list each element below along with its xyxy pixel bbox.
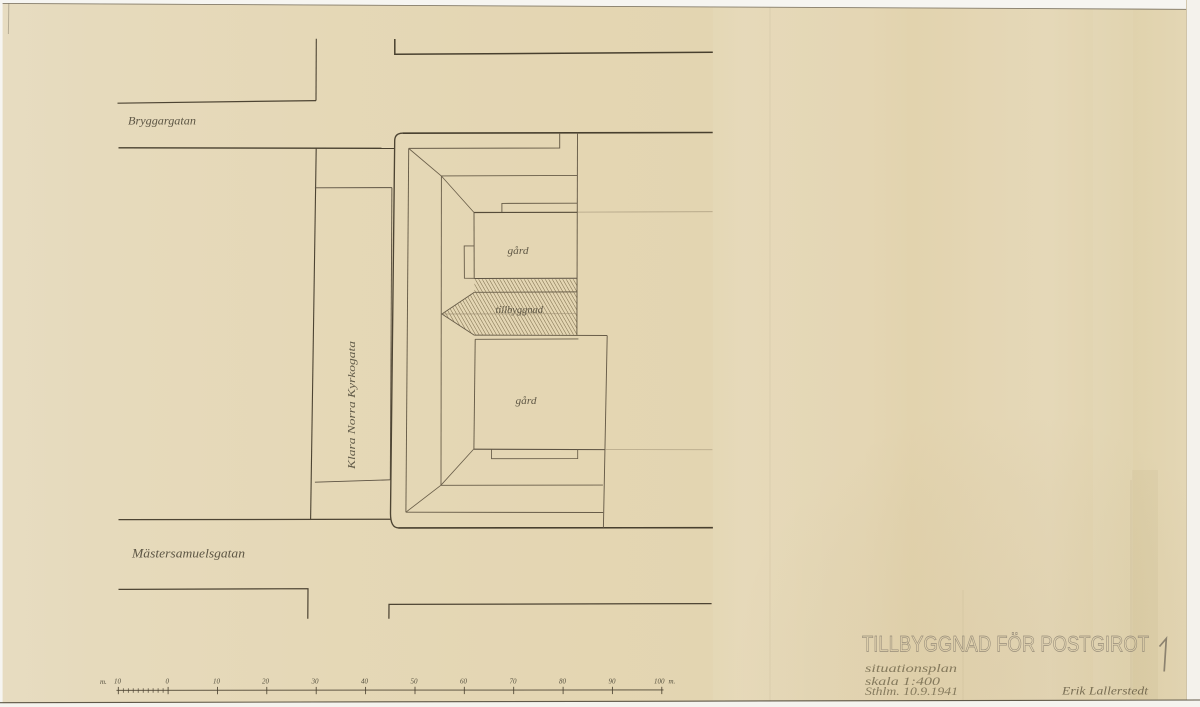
- svg-text:Klara Norra Kyrkogata: Klara Norra Kyrkogata: [346, 341, 358, 470]
- svg-text:Mästersamuelsgatan: Mästersamuelsgatan: [131, 547, 245, 561]
- svg-text:10: 10: [114, 678, 122, 686]
- svg-text:80: 80: [559, 678, 567, 686]
- svg-text:30: 30: [311, 678, 320, 686]
- svg-text:gård: gård: [508, 246, 530, 257]
- svg-text:m.: m.: [669, 678, 676, 686]
- svg-text:0: 0: [166, 678, 170, 686]
- svg-text:60: 60: [460, 678, 468, 686]
- svg-text:100: 100: [654, 678, 665, 686]
- svg-text:20: 20: [262, 678, 270, 686]
- svg-text:Bryggargatan: Bryggargatan: [128, 114, 196, 128]
- svg-text:70: 70: [510, 678, 518, 686]
- svg-text:10: 10: [213, 678, 221, 686]
- svg-text:TILLBYGGNAD FÖR POSTGIROT: TILLBYGGNAD FÖR POSTGIROT: [862, 632, 1149, 657]
- svg-text:tillbyggnad: tillbyggnad: [496, 305, 544, 316]
- svg-text:Sthlm. 10.9.1941: Sthlm. 10.9.1941: [865, 686, 958, 698]
- svg-text:gård: gård: [516, 396, 538, 407]
- svg-text:50: 50: [411, 678, 419, 686]
- svg-text:90: 90: [609, 678, 617, 686]
- svg-text:40: 40: [361, 678, 369, 686]
- svg-text:m.: m.: [100, 678, 107, 686]
- svg-text:Erik Lallerstedt: Erik Lallerstedt: [1061, 684, 1149, 698]
- svg-text:situationsplan: situationsplan: [865, 661, 957, 675]
